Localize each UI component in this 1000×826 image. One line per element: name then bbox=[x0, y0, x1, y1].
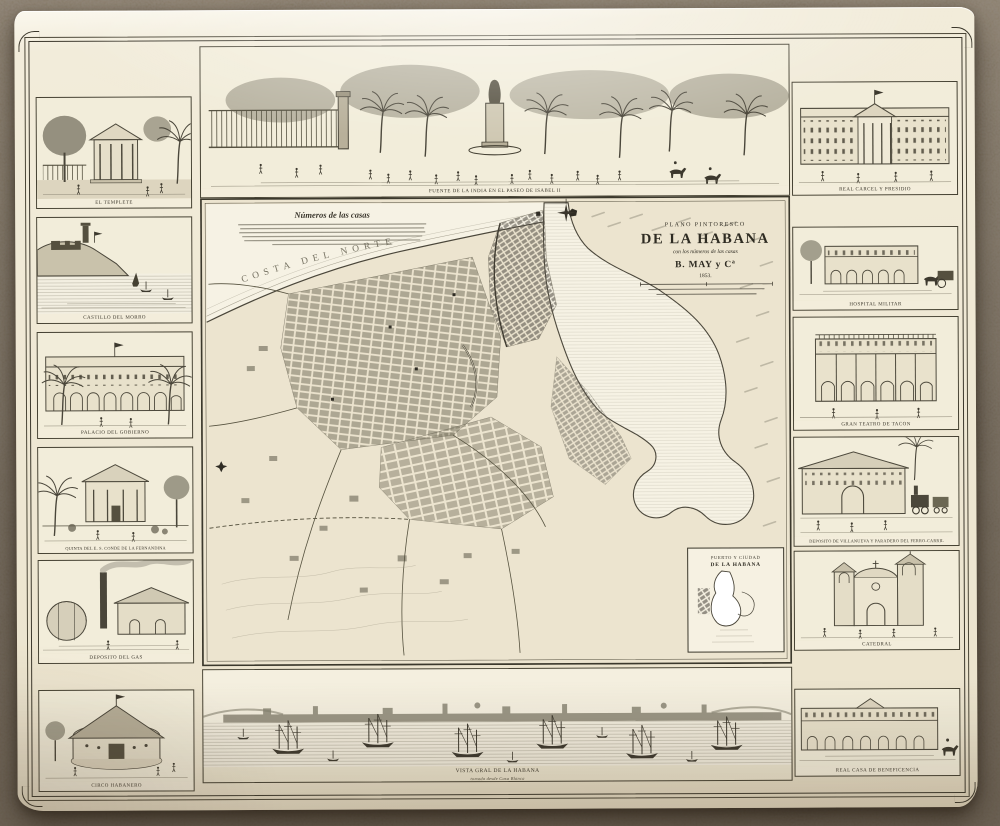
vignette-caption: REAL CASA DE BENEFICENCIA bbox=[796, 766, 960, 776]
vignette-quinta-fernandina: QUINTA DEL E. S. CONDE DE LA FERNANDINA bbox=[37, 446, 193, 554]
vignette-caption: CATEDRAL bbox=[795, 640, 959, 650]
vignette-carcel-presidio: REAL CARCEL Y PRESIDIO bbox=[792, 81, 958, 196]
corner-ornament bbox=[951, 27, 972, 48]
vignette-caption: CIRCO HABANERO bbox=[40, 781, 194, 791]
vignette-palacio-gobierno: PALACIO DEL GOBIERNO bbox=[37, 331, 193, 439]
vignette-templete: EL TEMPLETE bbox=[36, 96, 192, 209]
vignette-caption-text: DEPOSITO DEL GAS bbox=[89, 655, 142, 660]
vignette-teatro-tacon-image bbox=[794, 317, 958, 421]
vignette-teatro-tacon: GRAN TEATRO DE TACON bbox=[793, 316, 959, 431]
vignette-caption: EL TEMPLETE bbox=[37, 198, 191, 208]
vignette-quinta-fernandina-image bbox=[38, 447, 192, 544]
vignette-fuente-india-image bbox=[200, 45, 789, 189]
harbor-inset-map: PUERTO Y CIUDAD DE LA HABANA bbox=[688, 548, 784, 652]
vignette-caption-text: CATEDRAL bbox=[862, 642, 892, 647]
inset-title-line2: DE LA HABANA bbox=[710, 562, 760, 568]
vignette-caption-text: PALACIO DEL GOBIERNO bbox=[81, 430, 149, 435]
vignette-templete-image bbox=[37, 97, 191, 199]
vignette-caption-text: GRAN TEATRO DE TACON bbox=[841, 422, 910, 427]
vignette-deposito-gas-image bbox=[39, 560, 193, 654]
cartouche-line1: PLANO PINTORESCO bbox=[665, 222, 746, 228]
vignette-catedral-image bbox=[795, 551, 959, 641]
vignette-castillo-morro-image bbox=[37, 217, 191, 314]
cartouche-line5: 1853. bbox=[699, 273, 712, 279]
vignette-casa-beneficencia-image bbox=[795, 689, 959, 767]
vignette-deposito-villanueva: DEPOSITO DE VILLANUEVA Y PARADERO DEL FE… bbox=[793, 436, 959, 547]
vignette-hospital-militar-image bbox=[793, 227, 957, 301]
corner-ornament bbox=[18, 31, 39, 52]
vignette-caption: PALACIO DEL GOBIERNO bbox=[38, 428, 192, 438]
vignette-casa-beneficencia: REAL CASA DE BENEFICENCIA bbox=[794, 688, 960, 777]
vignette-caption: QUINTA DEL E. S. CONDE DE LA FERNANDINA bbox=[39, 543, 193, 553]
vignette-vista-habana: VISTA GRAL DE LA HABANA tomada desde Cas… bbox=[202, 667, 792, 784]
vignette-caption-text: REAL CASA DE BENEFICENCIA bbox=[836, 768, 920, 773]
vignette-caption-text: REAL CARCEL Y PRESIDIO bbox=[839, 187, 911, 192]
vignette-vista-habana-image bbox=[203, 668, 791, 768]
vignette-caption-text: EL TEMPLETE bbox=[95, 200, 133, 205]
vignette-caption-text: HOSPITAL MILITAR bbox=[849, 302, 901, 307]
vignette-catedral: CATEDRAL bbox=[794, 550, 960, 651]
vignette-caption: DEPOSITO DE VILLANUEVA Y PARADERO DEL FE… bbox=[795, 536, 959, 546]
vignette-caption: HOSPITAL MILITAR bbox=[794, 300, 958, 310]
photo-of-antique-map: FUENTE DE LA INDIA EN EL PASEO DE ISABEL… bbox=[0, 0, 1000, 826]
map-notes-heading: Números de las casas bbox=[293, 210, 370, 220]
vignette-caption: CASTILLO DEL MORRO bbox=[38, 313, 192, 323]
inset-title-line1: PUERTO Y CIUDAD bbox=[711, 555, 761, 560]
vignette-circo-habanero-image bbox=[39, 690, 193, 782]
vignette-subcaption-text: tomada desde Casa Blanca bbox=[471, 776, 525, 781]
vignette-deposito-gas: DEPOSITO DEL GAS bbox=[38, 559, 194, 664]
cartouche-line3: con los números de las casas bbox=[673, 249, 738, 255]
vignette-caption-text: QUINTA DEL E. S. CONDE DE LA FERNANDINA bbox=[65, 545, 166, 550]
vignette-fuente-india: FUENTE DE LA INDIA EN EL PASEO DE ISABEL… bbox=[199, 44, 790, 199]
vignette-caption-text: FUENTE DE LA INDIA EN EL PASEO DE ISABEL… bbox=[429, 188, 561, 194]
cartouche-line2: DE LA HABANA bbox=[641, 231, 770, 248]
printed-area: FUENTE DE LA INDIA EN EL PASEO DE ISABEL… bbox=[28, 37, 965, 797]
vignette-caption: DEPOSITO DEL GAS bbox=[39, 653, 193, 663]
vignette-circo-habanero: CIRCO HABANERO bbox=[38, 689, 194, 792]
city-map-havana: Números de las casas COSTA DEL NORTE PLA… bbox=[200, 196, 792, 667]
vignette-caption-text: VISTA GRAL DE LA HABANA bbox=[456, 767, 540, 773]
city-map-image: Números de las casas COSTA DEL NORTE PLA… bbox=[200, 196, 792, 667]
map-sheet: FUENTE DE LA INDIA EN EL PASEO DE ISABEL… bbox=[14, 7, 977, 811]
vignette-caption: GRAN TEATRO DE TACON bbox=[794, 420, 958, 430]
vignette-palacio-gobierno-image bbox=[38, 332, 192, 429]
vignette-deposito-villanueva-image bbox=[794, 437, 958, 537]
vignette-caption: REAL CARCEL Y PRESIDIO bbox=[793, 185, 957, 195]
vignette-caption-text: CIRCO HABANERO bbox=[91, 783, 142, 788]
vignette-caption-text: DEPOSITO DE VILLANUEVA Y PARADERO DEL FE… bbox=[809, 538, 944, 544]
vignette-castillo-morro: CASTILLO DEL MORRO bbox=[36, 216, 192, 324]
vignette-hospital-militar: HOSPITAL MILITAR bbox=[792, 226, 958, 311]
vignette-carcel-presidio-image bbox=[793, 82, 957, 186]
vignette-caption-text: CASTILLO DEL MORRO bbox=[83, 315, 146, 320]
cartouche-line4: B. MAY y Cª bbox=[675, 260, 736, 270]
